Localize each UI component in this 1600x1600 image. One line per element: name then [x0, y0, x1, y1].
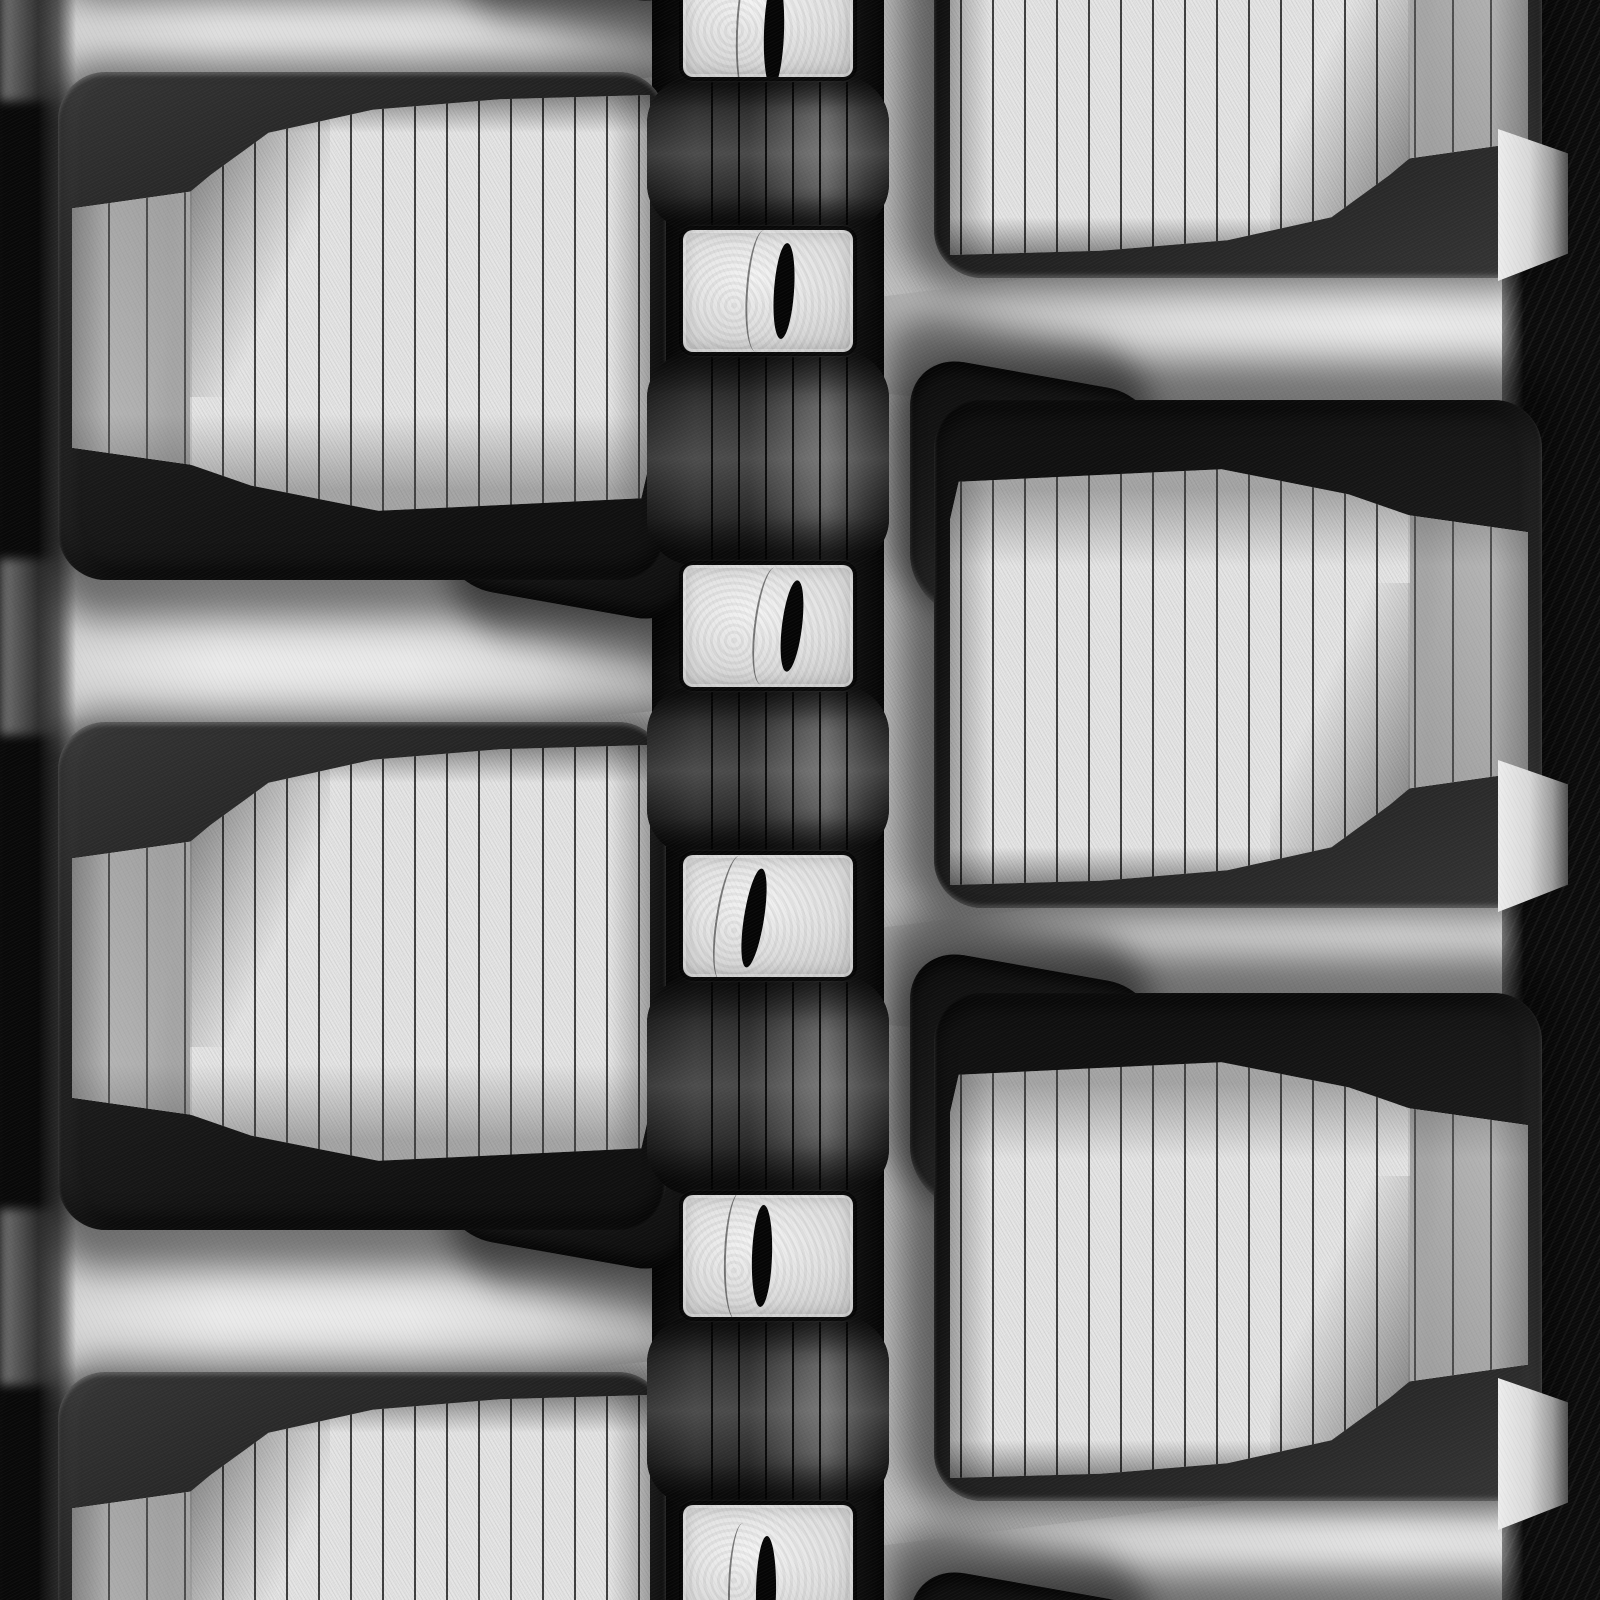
photo-grain — [0, 0, 1600, 1600]
rubber-track-photo — [0, 0, 1600, 1600]
